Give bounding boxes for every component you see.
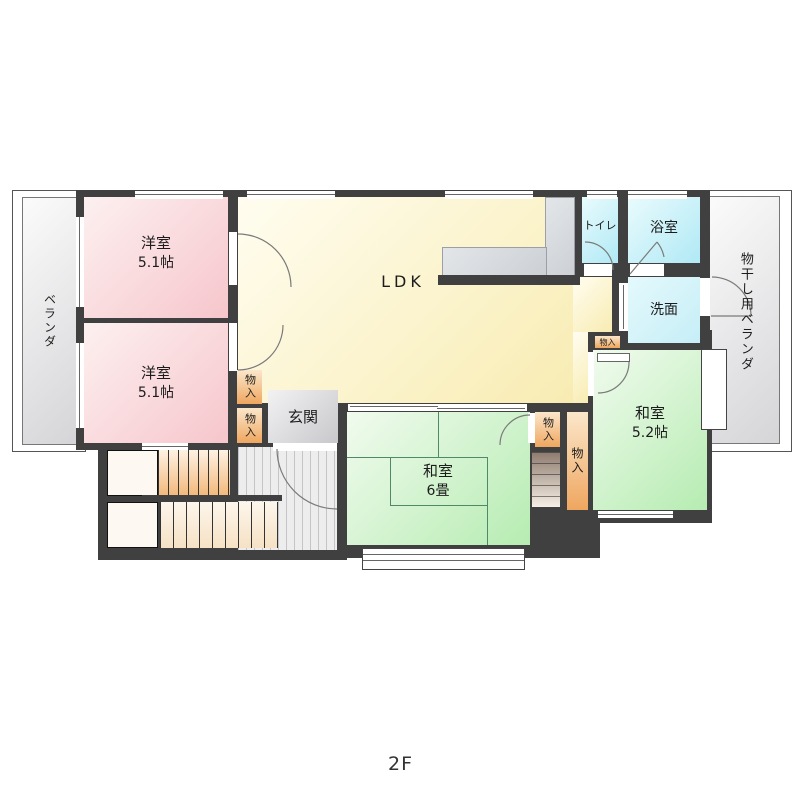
window-top-ldk-left [247,191,335,199]
room-name: 和室 [635,404,665,422]
window-veranda-top [76,217,84,307]
tatami-line [390,457,391,505]
tatami-line [487,457,488,545]
door-gap-genkan [273,443,337,451]
label-veranda-right: 物干し用ベランダ [736,252,753,372]
label-washitsu-6: 和室 6畳 [398,462,478,500]
closet-b: 物入 [237,408,262,443]
label-washroom: 洗面 [634,301,694,319]
floor-label: 2F [388,753,413,775]
closet-washitsu: 物入 [535,412,560,447]
stair-divider [142,495,282,501]
room-size: 5.2帖 [610,424,690,442]
room-size: 6畳 [398,482,478,500]
closet-a: 物入 [237,370,262,404]
tatami-line [438,412,439,457]
kitchen-counter-edge [438,275,580,285]
door-gap-western-top [229,232,237,285]
room-ldk-ext2 [573,332,588,403]
closet-tall-label: 物入 [569,447,586,475]
label-western-top: 洋室 5.1帖 [96,234,216,272]
label-washitsu-52: 和室 5.2帖 [610,404,690,442]
door-leaf-washitsu52 [597,353,630,362]
sliding-door-ldk-washitsu6 [348,404,527,411]
stair-landing-top [107,450,158,496]
room-ldk [238,197,573,403]
label-western-bottom: 洋室 5.1帖 [96,364,216,402]
stairs-lower-flight [160,502,278,548]
room-name: 洋室 [141,364,171,382]
kitchen-counter-horizontal [442,247,547,277]
stairs-upper-flight [158,450,230,496]
floor-plan: ベランダ 物入 物入 物入 物入 物入 [0,0,800,800]
window-washitsu52-bottom [598,511,673,518]
window-veranda-bottom [76,343,84,428]
room-size: 5.1帖 [96,254,216,272]
room-name: 和室 [423,462,453,480]
closet-mini: 物入 [595,336,620,348]
sliding-door-rail [350,406,438,407]
window-top-western [135,191,223,199]
closet-b-label: 物入 [242,413,258,439]
room-ldk-ext1 [573,277,612,332]
door-gap-washitsu52 [588,352,594,396]
veranda-left-label: ベランダ [42,293,59,349]
door-gap-closet-washitsu [528,413,535,443]
veranda-left: ベランダ [22,197,78,445]
room-name: 洋室 [141,234,171,252]
door-gap-western-bottom [229,323,237,371]
bay-window-washitsu52 [701,349,727,430]
label-bath: 浴室 [634,219,694,237]
sliding-door-rail [437,408,525,409]
window-top-ldk-right [445,191,533,199]
closet-mini-label: 物入 [600,337,616,348]
window-stairwell [142,443,188,450]
closet-washitsu-label: 物入 [540,417,556,443]
kitchen-counter-vertical [545,197,575,279]
room-size: 5.1帖 [96,384,216,402]
label-toilet: トイレ [580,219,620,233]
door-gap-bath [630,264,664,276]
closet-a-label: 物入 [242,374,258,400]
stair-landing-bottom [107,502,158,548]
sliding-door-rail [623,285,624,329]
bay-window-washitsu6 [362,548,525,570]
door-gap-toilet [584,264,612,276]
label-ldk: LDK [368,272,438,293]
sliding-door-ldk-washroom [619,283,628,331]
window-top-toilet [587,191,617,199]
label-genkan: 玄関 [273,408,333,428]
door-gap-balcony [700,278,710,316]
closet-tall: 物入 [567,412,588,510]
tatami-line [347,457,487,458]
tatami-line [390,505,487,506]
stairwell-opening [532,452,560,507]
window-top-bath [628,191,687,199]
